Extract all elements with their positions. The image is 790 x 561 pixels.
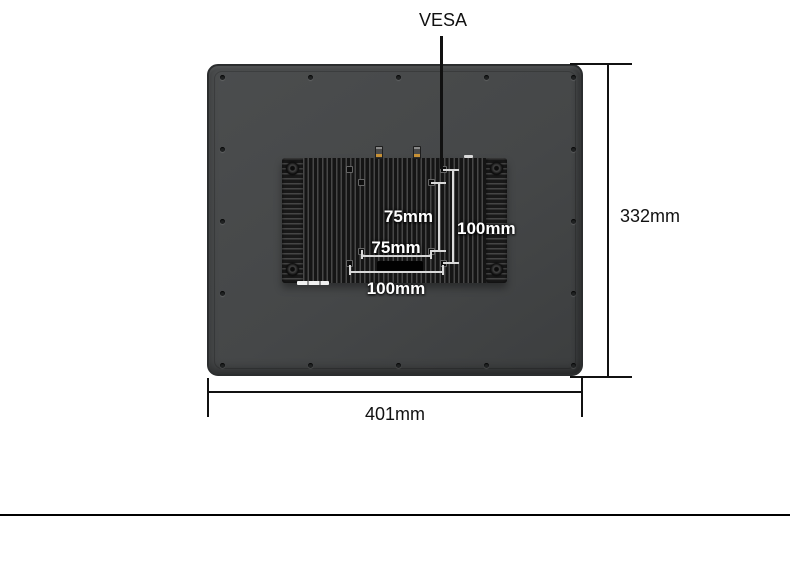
section-divider	[0, 514, 790, 516]
dimension-tick	[349, 265, 351, 275]
vesa-hole	[346, 166, 353, 173]
dimension-line-vesa-75-vertical	[438, 182, 440, 251]
dimension-label-vesa-100-vertical: 100mm	[457, 220, 516, 237]
extension-line	[570, 63, 632, 65]
dimension-label-vesa-75-vertical: 75mm	[383, 208, 433, 225]
vesa-callout-arrow	[440, 36, 443, 169]
dimension-tick	[443, 169, 459, 171]
label-strip	[297, 281, 329, 285]
panel-screw	[571, 147, 576, 152]
product-dimension-diagram: 75mm 100mm 75mm 100mm VESA 332mm 401mm	[0, 0, 790, 561]
panel-screw	[484, 363, 489, 368]
dimension-label-vesa-75-horizontal: 75mm	[361, 239, 431, 256]
panel-screw	[484, 75, 489, 80]
panel-screw	[220, 291, 225, 296]
antenna-connector	[375, 146, 383, 159]
panel-screw	[396, 75, 401, 80]
dimension-line-height	[607, 63, 609, 378]
panel-screw	[396, 363, 401, 368]
dimension-line-vesa-100-horizontal	[349, 271, 443, 273]
heatsink-screw	[490, 162, 503, 175]
dimension-tick	[431, 182, 446, 184]
panel-screw	[220, 75, 225, 80]
extension-line	[570, 376, 632, 378]
panel-screw	[220, 219, 225, 224]
dimension-label-width: 401mm	[207, 405, 583, 423]
panel-screw	[571, 291, 576, 296]
dimension-label-height: 332mm	[620, 207, 680, 225]
panel-screw	[308, 75, 313, 80]
vesa-hole	[358, 179, 365, 186]
panel-screw	[571, 219, 576, 224]
panel-screw	[220, 147, 225, 152]
dimension-tick	[442, 265, 444, 275]
dimension-line-width	[207, 391, 583, 393]
heatsink-screw	[286, 162, 299, 175]
dimension-tick	[431, 250, 446, 252]
panel-screw	[571, 363, 576, 368]
heatsink-screw	[286, 263, 299, 276]
heatsink-screw	[490, 263, 503, 276]
antenna-connector	[413, 146, 421, 159]
panel-screw	[308, 363, 313, 368]
port-marking	[464, 155, 473, 158]
panel-screw	[571, 75, 576, 80]
dimension-line-vesa-100-vertical	[452, 169, 454, 263]
dimension-label-vesa-100-horizontal: 100mm	[349, 280, 443, 297]
vesa-callout-label: VESA	[403, 11, 483, 29]
panel-screw	[220, 363, 225, 368]
dimension-tick	[443, 262, 459, 264]
